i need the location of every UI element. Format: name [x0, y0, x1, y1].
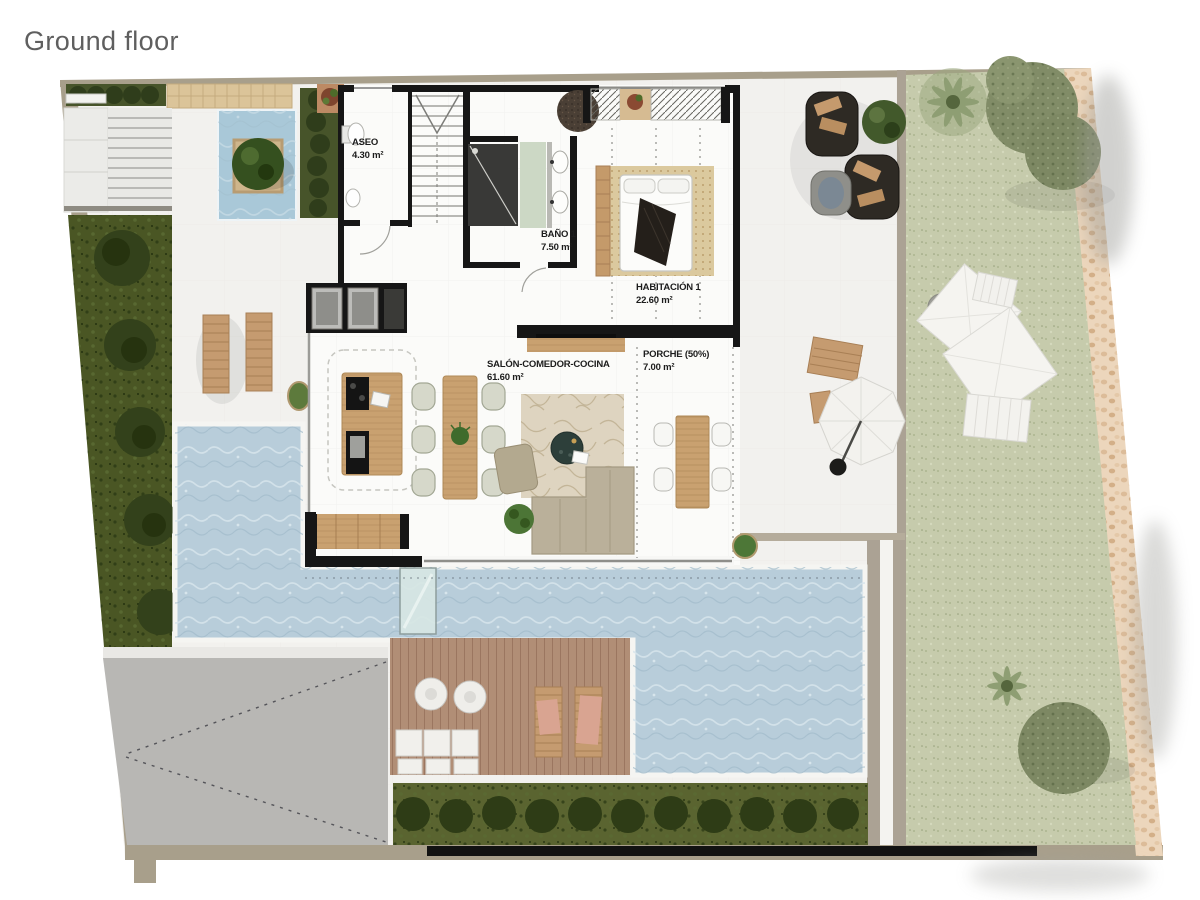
courtyard-tree: [232, 138, 284, 190]
patio-bush: [862, 100, 906, 144]
room-area: 4.30 m²: [352, 150, 383, 163]
sink: [552, 151, 568, 173]
courtyard: [218, 110, 296, 220]
room-name: HABITACIÓN 1: [636, 282, 700, 295]
room-area: 7.00 m²: [643, 362, 709, 375]
room-label-porche: PORCHE (50%) 7.00 m²: [643, 349, 709, 375]
site-plan-graphic: [0, 0, 1200, 900]
deck: [390, 638, 630, 775]
room-area: 61.60 m²: [487, 372, 610, 385]
room-area: 22.60 m²: [636, 295, 700, 308]
floor-plan-page: Ground floor ASEO 4.30 m² BAÑO 1 7.50 m²…: [0, 0, 1200, 900]
pool-side-path: [867, 540, 880, 845]
room-name: ASEO: [352, 137, 383, 150]
lawn-lounger: [963, 394, 1031, 442]
bath-mat: [520, 142, 546, 228]
living-plant: [504, 504, 534, 534]
dining-area: [412, 376, 505, 499]
potted-plant: [733, 534, 757, 558]
patio-lawn-divider: [897, 70, 906, 543]
wardrobe: [583, 87, 730, 123]
room-name: BAÑO 1: [541, 229, 576, 242]
room-name: SALÓN-COMEDOR-COCINA: [487, 359, 610, 372]
parasol-base: [830, 459, 847, 476]
tv: [536, 334, 616, 338]
washbasin: [346, 189, 360, 207]
page-title: Ground floor: [24, 26, 179, 57]
armchair: [493, 443, 538, 495]
deck-lounger: [535, 687, 562, 757]
deck-lounger: [575, 687, 602, 757]
left-garden: [68, 215, 183, 647]
room-label-aseo: ASEO 4.30 m²: [352, 137, 383, 163]
outdoor-sofa: [845, 155, 899, 219]
hob: [346, 377, 369, 410]
bed-area: [596, 166, 714, 276]
room-label-bano: BAÑO 1 7.50 m²: [541, 229, 576, 255]
pillow: [658, 179, 689, 193]
room-label-habitacion: HABITACIÓN 1 22.60 m²: [636, 282, 700, 308]
exterior-stairs: [64, 94, 172, 212]
driveway: [103, 647, 388, 845]
room-label-salon: SALÓN-COMEDOR-COCINA 61.60 m²: [487, 359, 610, 385]
outdoor-sofa: [806, 92, 858, 156]
room-name: PORCHE (50%): [643, 349, 709, 362]
ottoman: [811, 171, 851, 215]
wood-walkway: [167, 84, 292, 108]
bottom-wall-line: [427, 846, 1037, 856]
sink: [552, 191, 568, 213]
pillow: [624, 179, 655, 193]
room-area: 7.50 m²: [541, 242, 576, 255]
deck-sunbeds: [396, 730, 478, 774]
palm-bush: [919, 68, 987, 136]
potted-plant: [288, 382, 310, 410]
